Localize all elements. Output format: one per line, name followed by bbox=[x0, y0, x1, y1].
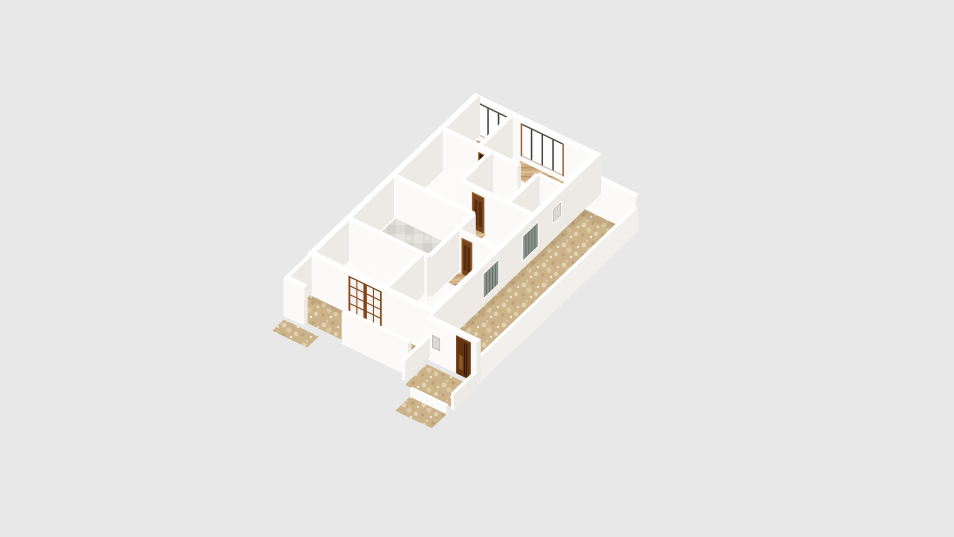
shutter-slat-line bbox=[486, 272, 487, 295]
entry-door-streak bbox=[466, 344, 467, 376]
wall-end-face bbox=[451, 393, 454, 411]
shutter-slat-line bbox=[535, 226, 536, 249]
interior-door-panel bbox=[467, 247, 470, 273]
window-jamb bbox=[521, 123, 523, 157]
interior-door-panel bbox=[479, 201, 482, 228]
shutter-slat-line bbox=[532, 229, 533, 252]
wall-end-face bbox=[427, 255, 430, 298]
floorplan-3d-viewport[interactable] bbox=[0, 0, 954, 537]
shutter-slat-line bbox=[489, 269, 490, 292]
shutter-slat-line bbox=[529, 231, 530, 254]
interior-door-panel bbox=[464, 245, 467, 271]
entry-door-streak bbox=[464, 343, 465, 375]
window-jamb bbox=[562, 143, 564, 177]
shutter-slat-line bbox=[526, 234, 527, 257]
window-post bbox=[552, 139, 554, 170]
window-post bbox=[531, 129, 533, 160]
window-post bbox=[542, 134, 543, 165]
shutter-slat-line bbox=[492, 266, 493, 289]
wall-end-face bbox=[304, 285, 307, 326]
floorplan-3d-render bbox=[0, 0, 954, 537]
shutter-slat-line bbox=[495, 263, 496, 286]
wall-end-face bbox=[402, 359, 405, 381]
entry-door-leaf bbox=[457, 337, 470, 380]
entry-door-highlight bbox=[459, 355, 463, 371]
